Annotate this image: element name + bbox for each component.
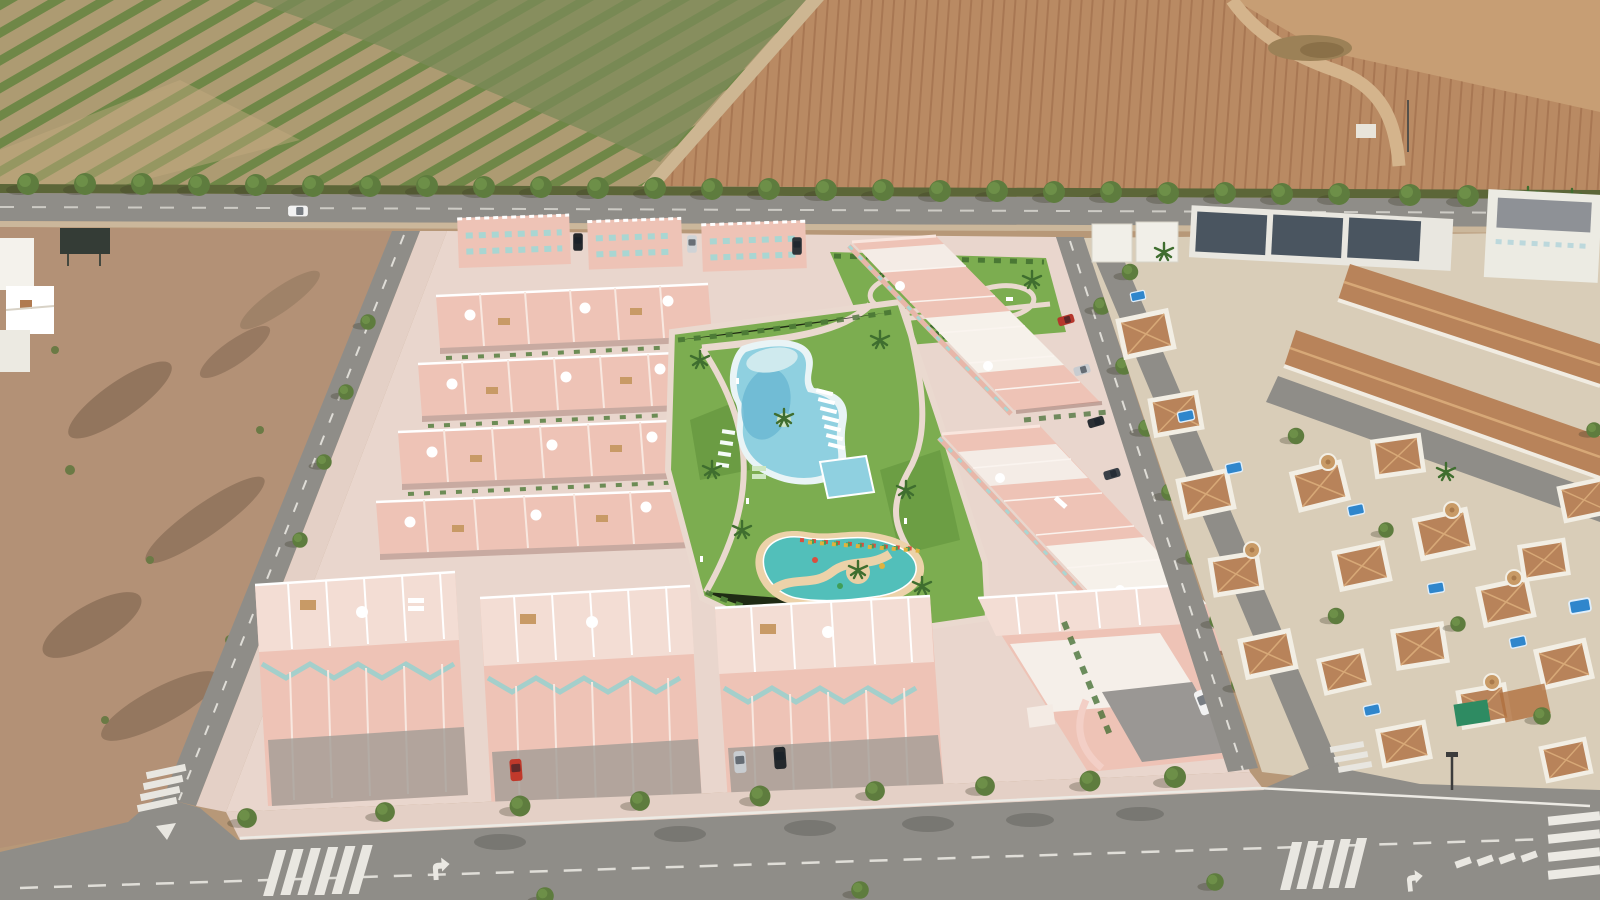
villa-turret (1506, 570, 1522, 586)
townhouse-row (398, 420, 698, 494)
villa (1517, 538, 1571, 583)
front-townhouse-cluster (255, 572, 468, 806)
front-townhouse-cluster (480, 586, 702, 812)
white-apartment-far-right (1484, 189, 1600, 283)
white-car (288, 206, 308, 217)
field-hut (1356, 124, 1376, 138)
villa-turret (1484, 674, 1500, 690)
villa-turret (1444, 502, 1460, 518)
townhouse-row (376, 490, 692, 560)
front-townhouse-cluster (715, 596, 944, 802)
villa (1370, 433, 1426, 480)
ploughed-field (660, 0, 1600, 192)
villa (1390, 621, 1450, 671)
villa-pool (1427, 582, 1444, 595)
kids-splash-pool (755, 531, 924, 607)
villa-turret (1244, 542, 1260, 558)
villa-pool (1569, 598, 1592, 614)
red-car (509, 759, 523, 782)
billboard (60, 228, 110, 254)
aerial-scene (0, 0, 1600, 900)
silver-car (733, 751, 747, 774)
lap-pool (820, 456, 874, 498)
aerial-photo (0, 0, 1600, 900)
top-apartment-blocks (457, 214, 807, 272)
dark-car (773, 747, 787, 770)
villa-turret (1320, 454, 1336, 470)
